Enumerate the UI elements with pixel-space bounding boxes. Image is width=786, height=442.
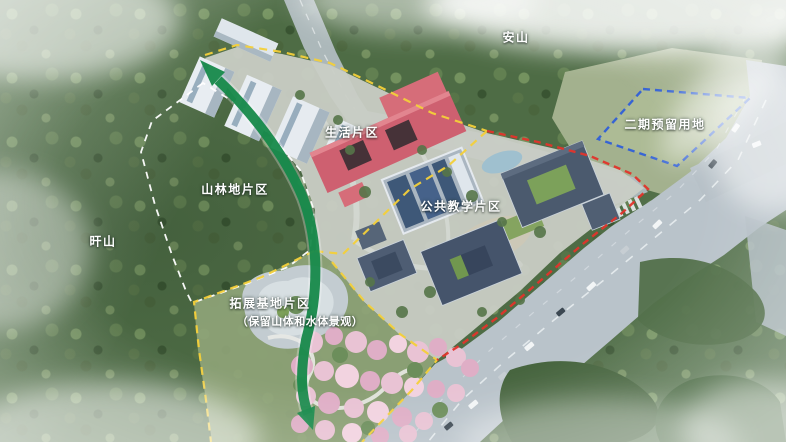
label-mountain-anshan: 安山 — [502, 29, 529, 46]
label-expansion-note: （保留山体和水体景观） — [237, 313, 364, 329]
label-teaching-zone: 公共教学片区 — [420, 198, 501, 215]
label-phase2-zone: 二期预留用地 — [624, 116, 705, 133]
label-expansion-zone: 拓展基地片区 — [229, 295, 310, 312]
label-living-zone: 生活片区 — [325, 124, 379, 141]
label-mountain-ganshan: 旰山 — [89, 233, 116, 250]
masterplan-rendering: 安山 二期预留用地 生活片区 山林地片区 公共教学片区 旰山 拓展基地片区 （保… — [0, 0, 786, 442]
siteplan-graphics — [0, 0, 786, 442]
label-forest-zone: 山林地片区 — [201, 181, 269, 198]
